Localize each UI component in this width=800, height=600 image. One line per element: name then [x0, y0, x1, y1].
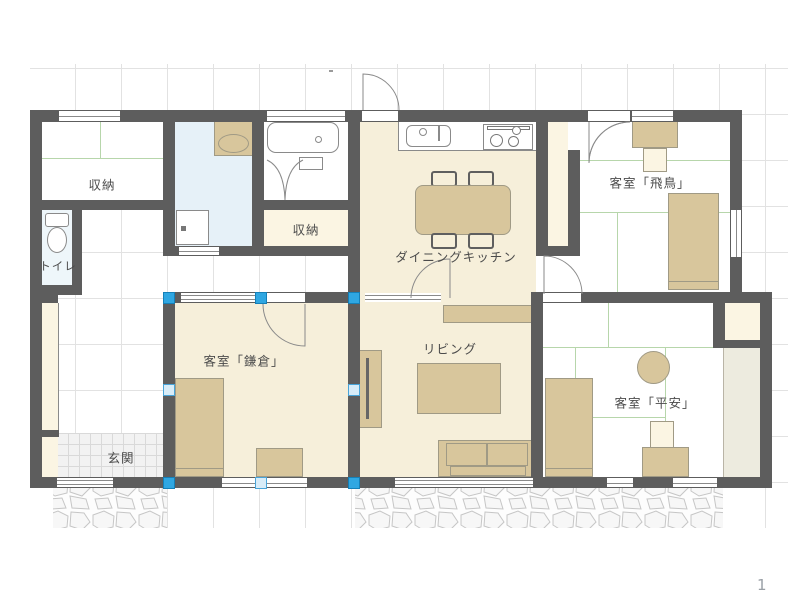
kamakura-chest[interactable] [256, 448, 303, 477]
wall-dk-closet-west[interactable] [536, 110, 548, 256]
wall-left-closet-divider[interactable] [42, 430, 59, 437]
asuka-bed[interactable] [668, 193, 719, 290]
sofa-front [450, 466, 526, 476]
bathtub-drain [315, 136, 322, 143]
sofa-cushion [487, 443, 528, 466]
washbasin-faucet [181, 226, 186, 231]
left-closet-lower [42, 437, 59, 477]
selection-handle[interactable] [255, 292, 267, 304]
window[interactable] [632, 111, 673, 121]
tv [366, 358, 369, 419]
label-guest-heian: 客室「平安」 [614, 393, 695, 412]
asuka-desk[interactable] [632, 121, 678, 148]
wall-heian-east[interactable] [760, 292, 772, 488]
selection-handle[interactable] [163, 477, 175, 489]
sideboard[interactable] [443, 305, 533, 323]
back-door-opening[interactable] [362, 111, 398, 121]
label-entrance: 玄関 [107, 448, 134, 467]
toilet-tank[interactable] [45, 213, 69, 227]
asuka-door-opening[interactable] [588, 111, 630, 121]
heian-desk[interactable] [642, 447, 689, 477]
tatami-line [543, 347, 713, 348]
stove-burner [490, 134, 503, 147]
selection-handle-mid[interactable] [348, 384, 360, 396]
label-toilet: トイレ [39, 258, 77, 274]
wall-alcove-south[interactable] [713, 340, 772, 348]
washroom-sliding-door[interactable] [179, 247, 219, 255]
label-living: リビング [423, 339, 477, 358]
selection-handle-mid[interactable] [255, 477, 267, 489]
window[interactable] [395, 478, 533, 487]
heian-chair[interactable] [650, 421, 674, 449]
kitchen-sink [406, 125, 451, 147]
sofa-cushion [446, 443, 487, 466]
toilet-bowl[interactable] [47, 227, 67, 253]
wall-heian-west[interactable] [531, 303, 543, 477]
tatami-line [100, 121, 101, 158]
bathtub[interactable] [267, 122, 339, 153]
label-dining-kitchen: ダイニングキッチン [395, 247, 517, 266]
stray-mark [329, 70, 333, 72]
window[interactable] [607, 478, 633, 487]
wall-bath-west[interactable] [252, 121, 264, 256]
window[interactable] [731, 210, 741, 257]
stove-burner [508, 136, 519, 147]
ldk-sliding-door[interactable] [365, 293, 441, 302]
page-number: 1 [757, 576, 767, 594]
kamakura-door-opening[interactable] [263, 293, 305, 302]
wall-toilet-east[interactable] [72, 210, 82, 292]
wall-dk-closet-east[interactable] [568, 150, 580, 256]
stove-burner [512, 126, 521, 135]
sink-faucet [438, 126, 440, 141]
dining-table[interactable] [415, 185, 511, 235]
tatami-line [42, 158, 163, 159]
heian-round-table[interactable] [637, 351, 670, 384]
selection-handle[interactable] [348, 477, 360, 489]
washing-machine-drum [218, 134, 249, 153]
heian-bed[interactable] [545, 378, 593, 477]
tv-board[interactable] [358, 350, 382, 428]
kamakura-sliding-door[interactable] [181, 293, 257, 302]
asuka-chair[interactable] [643, 148, 667, 172]
window[interactable] [673, 478, 717, 487]
wall-dk-west[interactable] [348, 110, 360, 303]
label-guest-asuka: 客室「飛鳥」 [609, 173, 690, 192]
closet-dk-asuka [548, 121, 568, 246]
heian-door-opening[interactable] [543, 293, 581, 302]
kamakura-bed[interactable] [175, 378, 224, 477]
bath-counter [299, 157, 323, 170]
heian-closet-strip [723, 348, 760, 477]
wall-left-closet-cap[interactable] [30, 292, 58, 303]
wall-hall-west[interactable] [163, 110, 175, 256]
tatami-line [617, 212, 618, 292]
window[interactable] [59, 111, 120, 121]
selection-handle[interactable] [163, 292, 175, 304]
window[interactable] [267, 111, 345, 121]
tatami-line [608, 303, 609, 347]
wall-bath-south[interactable] [256, 200, 360, 210]
wall-dk-closet-south[interactable] [536, 246, 580, 256]
label-guest-kamakura: 客室「鎌倉」 [203, 351, 284, 370]
entrance-sliding-door[interactable] [57, 478, 113, 487]
wall-toilet-north[interactable] [30, 200, 175, 210]
left-closet-upper [42, 303, 59, 430]
heian-alcove [725, 303, 760, 341]
stove-bar [487, 126, 530, 130]
wall-right-upper[interactable] [730, 110, 742, 303]
living-table[interactable] [417, 363, 501, 414]
floorplan-canvas: 収納 トイレ 収納 ダイニングキッチン 客室「飛鳥」 客室「鎌倉」 リビング 客… [0, 0, 800, 600]
sink-hole [419, 128, 427, 136]
selection-handle[interactable] [348, 292, 360, 304]
label-storage-nw: 収納 [88, 175, 115, 194]
label-storage-mid: 収納 [292, 220, 319, 239]
selection-handle-mid[interactable] [163, 384, 175, 396]
